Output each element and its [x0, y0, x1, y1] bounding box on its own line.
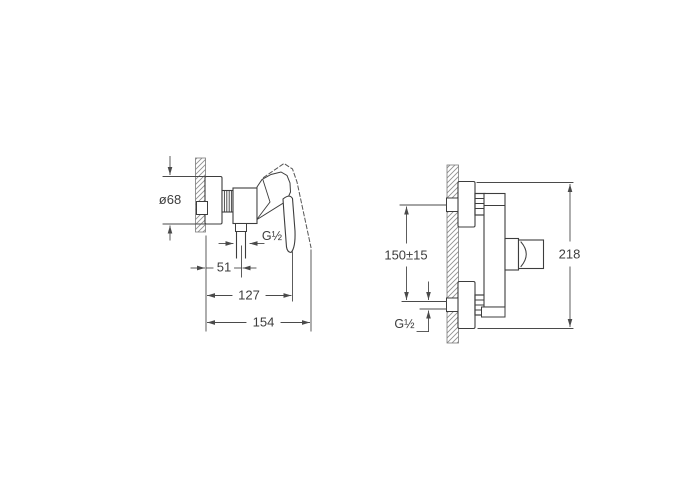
dim-154-label: 154	[253, 315, 275, 330]
escutcheon-side	[205, 177, 222, 225]
mixer-body-front	[484, 194, 505, 308]
technical-drawing: ø68 G½ 51 127 154	[0, 0, 700, 494]
wall-hatch-side	[196, 158, 206, 232]
dim-150-label: 150±15	[384, 248, 427, 263]
dim-218-label: 218	[559, 247, 581, 262]
mixer-body-side	[233, 188, 257, 224]
handle-hub	[505, 239, 519, 271]
knurled-nut-side	[222, 191, 233, 213]
dim-outlet-thread-label: G½	[262, 229, 283, 243]
dim-127-label: 127	[238, 288, 260, 303]
escutcheon-top	[458, 182, 475, 228]
dim-51-label: 51	[217, 260, 231, 275]
wall-hatch-front	[447, 165, 459, 343]
body-bottom-block	[482, 307, 506, 317]
dim-inlet-thread-label: G½	[394, 317, 415, 331]
paper-background	[0, 0, 700, 494]
dim-diameter-label: ø68	[159, 192, 181, 207]
escutcheon-bottom	[458, 282, 475, 329]
supply-connector-bottom	[447, 298, 459, 312]
outlet-step	[236, 224, 247, 232]
drawing-svg: ø68 G½ 51 127 154	[0, 0, 700, 494]
supply-connector-top	[447, 198, 459, 212]
supply-connector-side	[197, 202, 208, 215]
